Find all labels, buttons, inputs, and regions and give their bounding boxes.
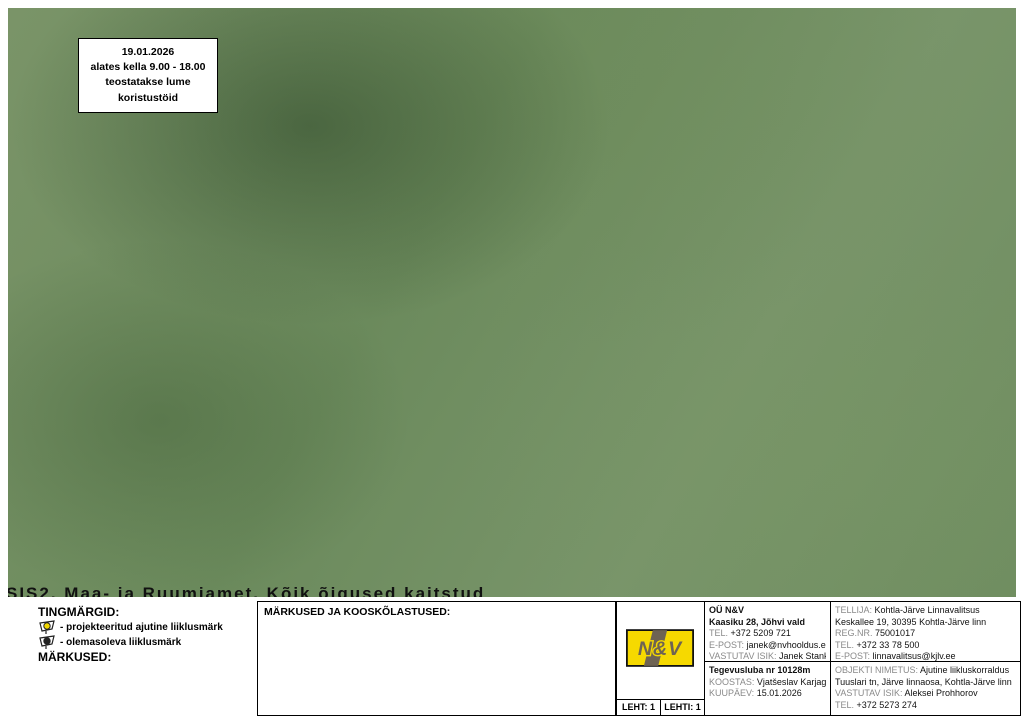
proposed-temporary-sign-icon <box>38 620 56 634</box>
client-email: linnavalitsus@kjlv.ee <box>873 651 956 661</box>
map-attribution: SIS2. Maa- ja Ruumiamet. Kõik õigused ka… <box>8 584 485 597</box>
notice-box: 19.01.2026 alates kella 9.00 - 18.00 teo… <box>78 38 218 113</box>
legend: TINGMÄRGID: - projekteeritud ajutine lii… <box>38 605 253 664</box>
company-client-box: N&V LEHT: 1 LEHTI: 1 OÜ N&V Kaasiku 28, … <box>616 601 1021 716</box>
sheet-count: LEHTI: 1 <box>661 700 704 715</box>
map-area: 19.01.2026 alates kella 9.00 - 18.00 teo… <box>8 8 1016 598</box>
company-email: janek@nvhooldus.ee <box>747 640 826 650</box>
object-tel-label: TEL. <box>835 700 854 710</box>
map-bottom-strip: SIS2. Maa- ja Ruumiamet. Kõik õigused ka… <box>8 584 1016 597</box>
logo-column: N&V LEHT: 1 LEHTI: 1 <box>617 602 705 715</box>
company-tel: +372 5209 721 <box>731 628 791 638</box>
company-name: OÜ N&V <box>709 605 826 617</box>
object-tel: +372 5273 274 <box>857 700 917 710</box>
title-block: TINGMÄRGID: - projekteeritud ajutine lii… <box>0 597 1024 727</box>
client-tel: +372 33 78 500 <box>857 640 920 650</box>
notice-time: alates kella 9.00 - 18.00 <box>82 60 214 75</box>
company-column: OÜ N&V Kaasiku 28, Jõhvi vald TEL. +372 … <box>705 602 831 715</box>
approvals-box: MÄRKUSED JA KOOSKÕLASTUSED: <box>257 601 616 716</box>
notes-title: MÄRKUSED: <box>38 650 253 664</box>
client-name: Kohtla-Järve Linnavalitsus <box>875 605 980 615</box>
client-tel-label: TEL. <box>835 640 854 650</box>
legend-item-existing: - olemasoleva liiklusmärk <box>38 635 253 649</box>
approvals-title: MÄRKUSED JA KOOSKÕLASTUSED: <box>258 602 615 622</box>
client-email-label: E-POST: <box>835 651 870 661</box>
company-address: Kaasiku 28, Jõhvi vald <box>709 617 826 629</box>
company-date-label: KUUPÄEV: <box>709 688 754 698</box>
legend-item-label: - olemasoleva liiklusmärk <box>60 637 181 648</box>
traffic-plan-sheet: 19.01.2026 alates kella 9.00 - 18.00 teo… <box>0 0 1024 727</box>
client-reg: 75001017 <box>875 628 915 638</box>
company-email-label: E-POST: <box>709 640 744 650</box>
object-name: Ajutine liikluskorraldus <box>920 665 1009 675</box>
notice-text: teostatakse lume koristustöid <box>82 75 214 105</box>
notice-date: 19.01.2026 <box>82 45 214 60</box>
object-responsible-label: VASTUTAV ISIK: <box>835 688 903 698</box>
object-label: OBJEKTI NIMETUS: <box>835 665 918 675</box>
company-responsible-label: VASTUTAV ISIK: <box>709 651 777 661</box>
company-author: Vjatšeslav Karjagin <box>757 677 826 687</box>
sheet-row: LEHT: 1 LEHTI: 1 <box>617 699 704 715</box>
company-logo: N&V <box>626 629 694 667</box>
company-date: 15.01.2026 <box>757 688 802 698</box>
client-address: Keskallee 19, 30395 Kohtla-Järve linn <box>835 617 1016 629</box>
object-responsible: Aleksei Prohhorov <box>905 688 978 698</box>
legend-title: TINGMÄRGID: <box>38 605 253 619</box>
legend-item-proposed: - projekteeritud ajutine liiklusmärk <box>38 620 253 634</box>
existing-sign-icon <box>38 635 56 649</box>
client-reg-label: REG.NR. <box>835 628 873 638</box>
client-column: TELLIJA: Kohtla-Järve Linnavalitsus Kesk… <box>831 602 1020 715</box>
company-tel-label: TEL. <box>709 628 728 638</box>
object-address: Tuuslari tn, Järve linnaosa, Kohtla-Järv… <box>835 677 1016 689</box>
company-responsible: Janek Stankevitš <box>779 651 826 661</box>
legend-item-label: - projekteeritud ajutine liiklusmärk <box>60 622 223 633</box>
company-author-label: KOOSTAS: <box>709 677 754 687</box>
company-license: Tegevusluba nr 10128m <box>709 665 826 677</box>
sheet-number: LEHT: 1 <box>617 700 661 715</box>
company-logo-text: N&V <box>638 638 683 660</box>
client-label: TELLIJA: <box>835 605 872 615</box>
